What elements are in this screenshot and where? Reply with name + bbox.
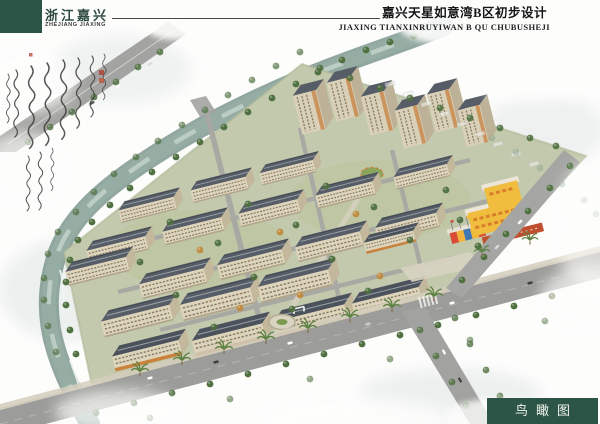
- project-title-en: JIAXING TIANXINRUYIWAN B QU CHUBUSHEJI: [338, 22, 550, 32]
- brand-name-en: ZHEJIANG JIAXING: [45, 22, 106, 28]
- logo-block: [0, 0, 42, 33]
- view-label-birdseye: 鸟瞰图: [487, 398, 598, 424]
- project-title-cn: 嘉兴天星如意湾B区初步设计: [382, 2, 547, 21]
- presentation-board: 浙江嘉兴 ZHEJIANG JIAXING 嘉兴天星如意湾B区初步设计 JIAX…: [0, 0, 600, 424]
- aerial-rendering: [0, 0, 600, 424]
- header-rule: [112, 18, 380, 19]
